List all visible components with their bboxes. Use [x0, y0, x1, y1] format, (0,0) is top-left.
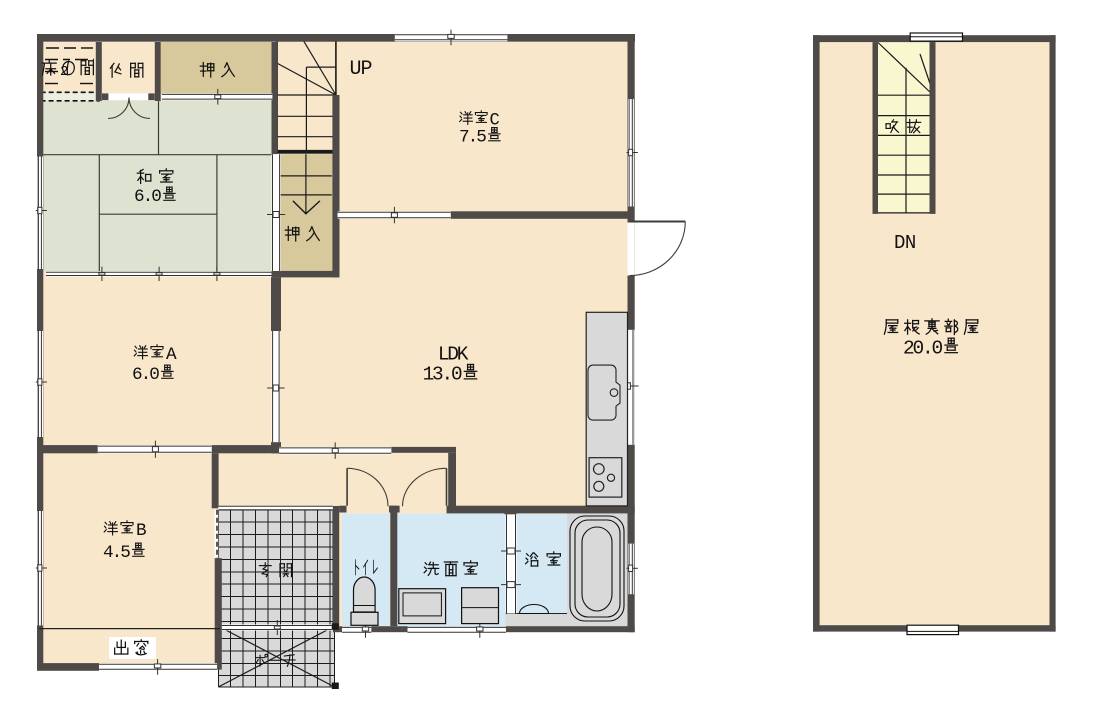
svg-text:4.5: 4.5 — [103, 543, 130, 563]
svg-text:LDK: LDK — [438, 343, 469, 365]
svg-text:2: 2 — [60, 64, 68, 80]
svg-text:DN: DN — [894, 232, 916, 254]
svg-text:UP: UP — [350, 58, 372, 81]
svg-text:B: B — [136, 521, 146, 541]
svg-text:6.0: 6.0 — [134, 187, 161, 207]
svg-text:7.5: 7.5 — [459, 128, 486, 148]
svg-text:13.0: 13.0 — [423, 364, 462, 386]
svg-text:20.0: 20.0 — [903, 338, 943, 360]
svg-text:6.0: 6.0 — [132, 365, 159, 385]
